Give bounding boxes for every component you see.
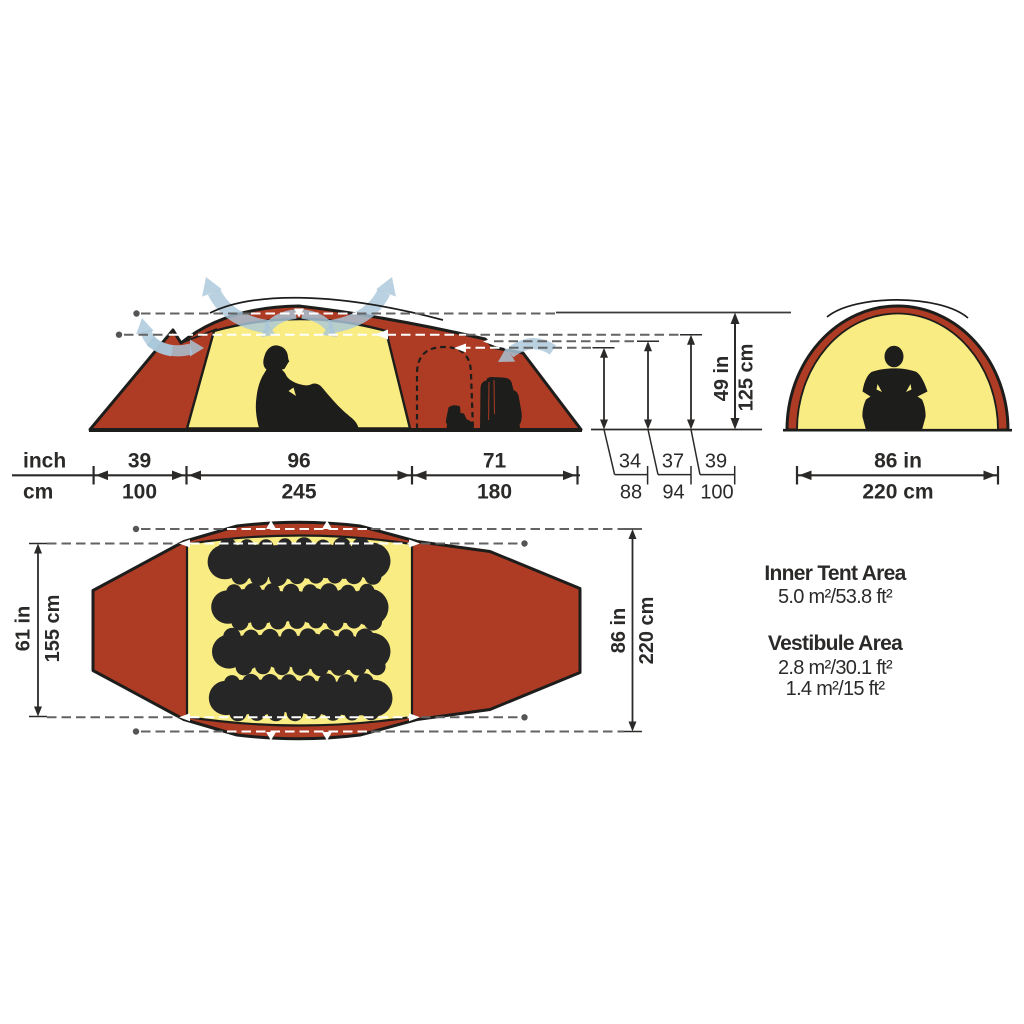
svg-text:180: 180	[477, 481, 512, 504]
svg-text:86 in: 86 in	[608, 608, 630, 654]
svg-text:88: 88	[620, 482, 642, 504]
svg-text:220 cm: 220 cm	[636, 597, 658, 665]
svg-text:96: 96	[287, 450, 310, 473]
svg-text:39: 39	[128, 450, 151, 473]
svg-text:61 in: 61 in	[13, 606, 35, 652]
svg-text:1.4 m²/15 ft²: 1.4 m²/15 ft²	[786, 678, 886, 700]
svg-text:94: 94	[662, 482, 684, 504]
svg-text:inch: inch	[23, 450, 66, 473]
svg-text:37: 37	[662, 451, 684, 473]
svg-text:71: 71	[483, 450, 507, 473]
svg-text:cm: cm	[23, 481, 53, 504]
svg-text:49 in: 49 in	[711, 356, 733, 402]
svg-text:86 in: 86 in	[874, 450, 922, 473]
svg-text:34: 34	[619, 451, 641, 473]
svg-text:220 cm: 220 cm	[862, 481, 933, 504]
svg-text:2.8 m²/30.1 ft²: 2.8 m²/30.1 ft²	[778, 657, 893, 679]
svg-text:155 cm: 155 cm	[42, 595, 64, 663]
svg-text:Inner Tent Area: Inner Tent Area	[764, 562, 906, 585]
svg-text:39: 39	[705, 451, 727, 473]
svg-text:125 cm: 125 cm	[736, 344, 758, 412]
svg-text:245: 245	[281, 481, 316, 504]
svg-text:100: 100	[122, 481, 157, 504]
svg-text:5.0 m²/53.8 ft²: 5.0 m²/53.8 ft²	[778, 586, 893, 608]
svg-text:Vestibule Area: Vestibule Area	[768, 632, 903, 655]
svg-text:100: 100	[700, 482, 733, 504]
